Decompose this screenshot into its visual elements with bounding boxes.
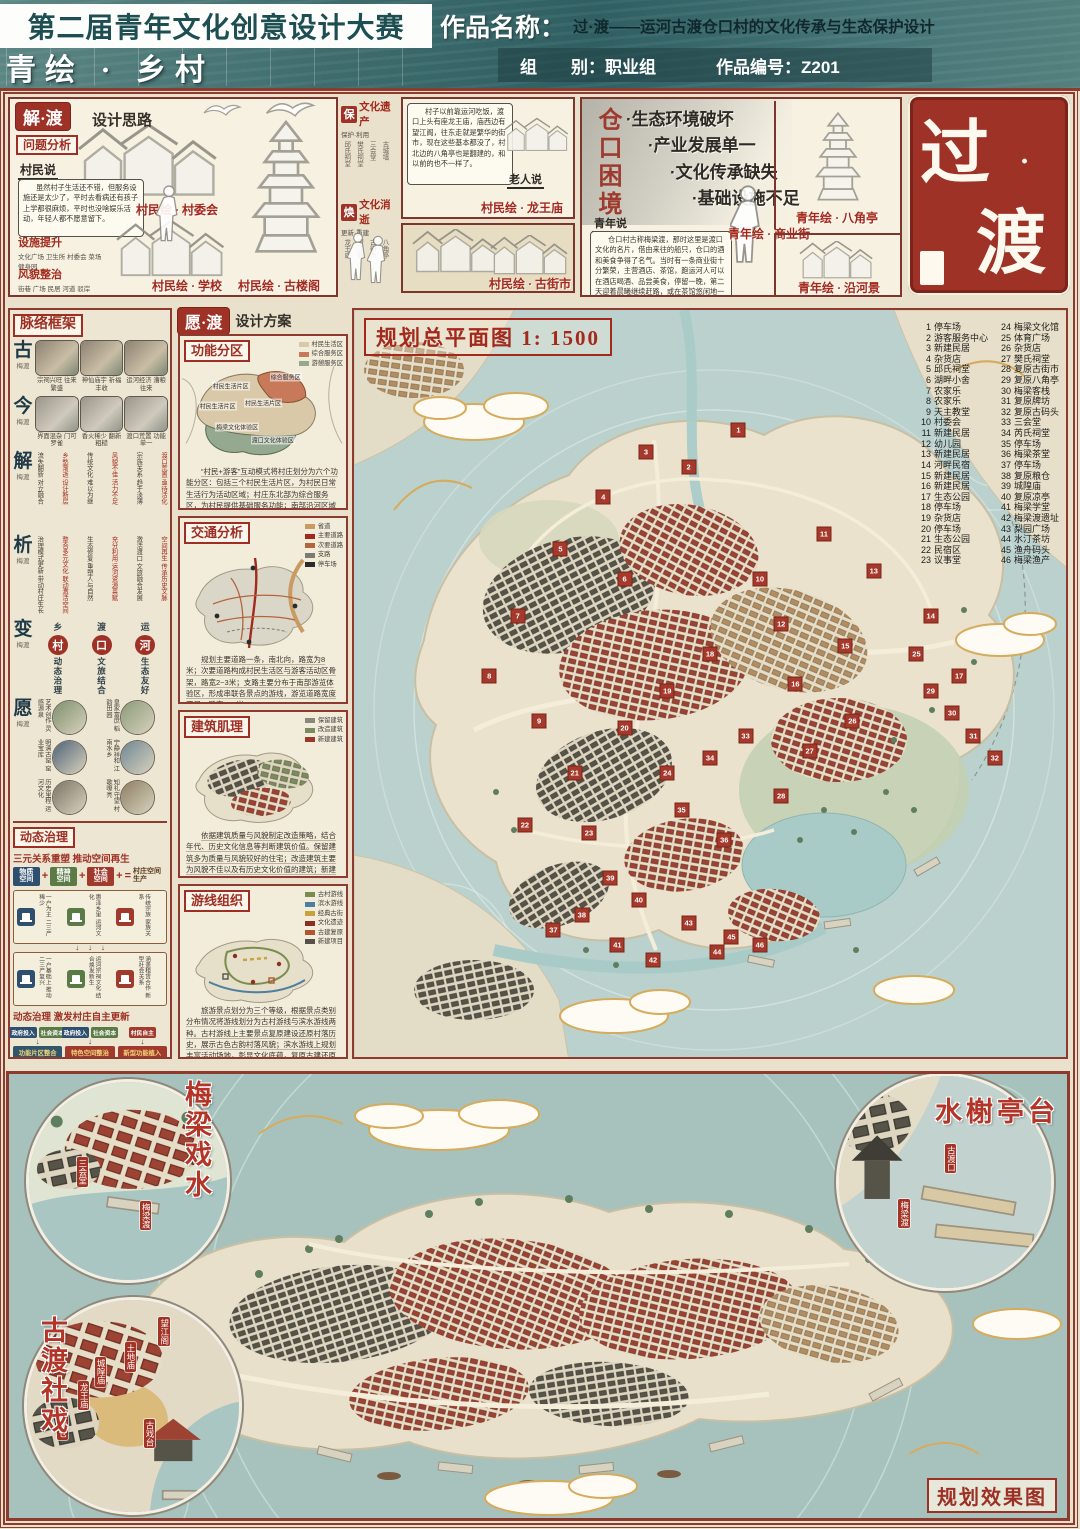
marker-number: 43	[684, 918, 692, 927]
map-marker: 10	[752, 571, 767, 586]
photo-card: 宗祠兴旺 往来繁盛	[36, 341, 78, 393]
marker-number: 30	[948, 709, 956, 718]
map-marker: 4	[596, 489, 611, 504]
analysis-note: 渡口荒置 亟待活化	[160, 452, 167, 532]
legend-row: 12幼儿园	[918, 439, 988, 450]
elder-quote: 村子以前靠运河吃饭，渡口上头有座龙王庙，庙西边有望江阁，往东走就是繁华的街市，现…	[407, 103, 513, 185]
legend-name: 生态公园	[934, 492, 970, 503]
vanish-title: 文化消逝	[359, 197, 399, 227]
row-analysis-2: 析梅渡 治理模式更新 带动村庄生长整合多元文化 联动激活空间生态修复 重塑人与自…	[13, 536, 167, 616]
analysis-note: 空间再生 传承历史文脉	[160, 536, 167, 616]
legend-number: 41	[998, 502, 1011, 513]
legend-row: 25体育广场	[998, 333, 1064, 344]
legend-name: 杂货店	[934, 513, 961, 524]
legend-name: 体育广场	[1014, 333, 1050, 344]
legend-number: 2	[918, 333, 931, 344]
legend-entry: 改造建筑	[305, 725, 343, 734]
yuan-du-seal: 愿·渡	[178, 308, 229, 334]
legend-number: 34	[998, 428, 1011, 439]
legend-name: 停车场	[934, 524, 961, 535]
row-analysis-1: 解梅渡 流失翻新 对立融合乡愁渐逝 设计断层传统文化 难以为继风貌不佳 活力不足…	[13, 452, 167, 532]
legend-entry: 综合服务区	[299, 349, 343, 358]
marker-number: 6	[622, 574, 626, 583]
map-marker: 13	[866, 564, 881, 579]
legend-row: 40复原凉亭	[998, 492, 1064, 503]
legend-number: 30	[998, 386, 1011, 397]
relation-card: 运河宗祠文化 结合焕发新生	[67, 956, 114, 1002]
transform-circle: 村	[48, 635, 68, 655]
villager-figure	[156, 183, 182, 245]
map-marker: 35	[674, 803, 689, 818]
transform-slogan: 生态友好	[139, 657, 151, 695]
legend-number: 37	[998, 460, 1011, 471]
legend-label: 次要道路	[318, 541, 343, 550]
map-marker: 27	[802, 743, 817, 758]
elder-figure	[347, 225, 369, 289]
legend-number: 23	[918, 555, 931, 566]
legend-label: 古村游线	[318, 890, 343, 899]
fabric-desc: 依据建筑质量与风貌制定改造策略，结合年代、历史文化信息等判断建筑价值。保留建筑多…	[186, 830, 340, 872]
legend-number: 39	[998, 481, 1011, 492]
style-renovation-title: 风貌整治	[18, 269, 62, 281]
routes-box: 游线组织 古村游线滨水游线经典古街文化遗迹古建复原新建项目 旅游景点划分为三个等…	[178, 884, 348, 1059]
relation-caption: 运河宗祠文化 结合焕发新生	[87, 956, 100, 1002]
main-title-seal: 过 · 渡 梅梁	[908, 95, 1070, 295]
legend-row: 21生态公园	[918, 534, 988, 545]
legend-row: 14河畔民宿	[918, 460, 988, 471]
legend-label: 停车场	[318, 560, 337, 569]
map-marker: 26	[845, 713, 860, 728]
analysis-note: 充分利用 运河资源禀赋	[110, 536, 117, 616]
caption-dragon-temple: 村民绘 · 龙王庙	[481, 199, 563, 216]
legend-swatch	[305, 737, 315, 742]
heritage-item: 古城墙	[379, 141, 389, 193]
photo-caption: 运河经济 漕粮往来	[125, 377, 167, 393]
photo-thumb	[125, 397, 167, 431]
legend-swatch	[305, 892, 315, 897]
legend-row: 19杂货店	[918, 513, 988, 524]
analysis-note: 激活渡口 文旅融合发展	[135, 536, 142, 616]
inset-tag: 望江阁	[158, 1317, 169, 1347]
legend-number: 44	[998, 534, 1011, 545]
dynamic-governance: 动态治理 三元关系重塑 推动空间再生 物质空间+ 精神空间+ 社会空间+ = 村…	[13, 821, 167, 1059]
map-marker: 28	[774, 788, 789, 803]
zoning-legend: 村民生活区综合服务区游憩服务区	[299, 340, 343, 368]
vision-cell: 皇家富庶 稻韵田园	[105, 699, 168, 735]
inset-tag: 古戏台	[144, 1419, 155, 1449]
legend-label: 古建复原	[318, 928, 343, 937]
vision-caption: 艺术创作 灵感源泉	[36, 699, 51, 735]
inset-tag: 城隍庙	[95, 1357, 106, 1387]
legend-label: 支路	[318, 550, 331, 559]
legend-name: 复原凉亭	[1014, 492, 1050, 503]
photo-caption: 神仙庙宇 祈福丰收	[81, 377, 123, 393]
relation-icon	[116, 908, 134, 926]
photo-thumb	[81, 397, 123, 431]
inset-label-meiliang: 梅梁戏水	[177, 1080, 216, 1200]
map-marker: 23	[581, 825, 596, 840]
zoning-tag: 功能分区	[184, 340, 250, 362]
legend-name: 梅梁茶堂	[1014, 449, 1050, 460]
marker-number: 46	[756, 940, 764, 949]
seal-dot: ·	[1020, 147, 1029, 177]
vision-photo	[53, 701, 86, 734]
marker-number: 21	[571, 769, 579, 778]
photo-caption: 宗祠兴旺 往来繁盛	[36, 377, 78, 393]
marker-number: 15	[841, 642, 849, 651]
legend-label: 村民生活区	[312, 340, 343, 349]
legend-number: 5	[918, 364, 931, 375]
photo-thumb	[125, 341, 167, 375]
group-label: 组 别：	[520, 58, 605, 77]
legend-row: 30梅梁客栈	[998, 386, 1064, 397]
legend-name: 梅梁渡遗址	[1014, 513, 1059, 524]
legend-label: 滨水游线	[318, 899, 343, 908]
master-plan-map: 规划总平面图 1: 1500 1停车场2游客服务中心3新建民居4杂货店5邱氏祠堂…	[352, 308, 1068, 1059]
era-gu: 古	[13, 341, 33, 360]
photo-card: 渡口荒置 功能单一	[125, 397, 167, 449]
jie-du-subtitle: 设计思路	[92, 109, 152, 130]
legend-number: 21	[918, 534, 931, 545]
legend-name: 梅梁渔产	[1014, 555, 1050, 566]
legend-swatch	[305, 562, 315, 567]
vision-cell: 宁静祥和 江南水乡	[105, 739, 168, 775]
legend-entry: 经典古街	[305, 909, 343, 918]
relation-caption: 涵盖租赁合作 新型社会关系	[136, 956, 149, 1002]
inset-tag: 梅梁渡	[140, 1201, 151, 1231]
legend-name: 复原八角亭	[1014, 375, 1059, 386]
map-marker: 30	[945, 706, 960, 721]
legend-number: 7	[918, 386, 931, 397]
inset-label-opera: 古渡社戏	[33, 1316, 72, 1436]
marker-number: 42	[649, 955, 657, 964]
problem-analysis-tag: 问题分析	[16, 135, 78, 155]
transform-slogan: 文旅结合	[96, 657, 108, 695]
legend-name: 河畔民宿	[934, 460, 970, 471]
zone-label: 村民生活片区	[212, 382, 250, 391]
analysis-note: 宗族关系 趋于淡薄	[135, 452, 142, 532]
fabric-tag: 建筑肌理	[184, 716, 250, 738]
legend-row: 31复原牌坊	[998, 396, 1064, 407]
formula-result: 村庄空间生产	[133, 868, 167, 885]
legend-entry: 省道	[305, 522, 343, 531]
inset-tag: 梅梁渡	[898, 1199, 909, 1229]
legend-row: 23议事堂	[918, 555, 988, 566]
legend-row: 20停车场	[918, 524, 988, 535]
inset-tag: 三会堂	[77, 1157, 88, 1187]
marker-number: 44	[713, 948, 721, 957]
heritage-item: 邱氏祠堂	[341, 141, 351, 193]
photo-caption: 香火稀少 翻新粗糙	[81, 433, 123, 449]
marker-number: 20	[620, 724, 628, 733]
legend-swatch	[299, 361, 309, 366]
vision-photo	[53, 741, 86, 774]
legend-row: 44水汀茶坊	[998, 534, 1064, 545]
legend-name: 三会堂	[1014, 417, 1041, 428]
entry-number-label: 作品编号：	[716, 58, 801, 77]
inset-label-pavilion: 水榭亭台	[935, 1090, 1059, 1129]
vision-caption: 皇家富庶 稻韵田园	[105, 699, 120, 735]
villager-say-label: 村民说	[18, 161, 58, 180]
legend-name: 复原牌坊	[1014, 396, 1050, 407]
marker-number: 18	[706, 649, 714, 658]
zone-label: 村民生活片区	[199, 401, 237, 410]
legend-name: 生态公园	[934, 534, 970, 545]
space-chip: 社会空间	[87, 867, 114, 886]
transform-slogan: 动态治理	[52, 657, 64, 695]
vision-caption: 明清古窑 窑业宝库	[36, 739, 51, 775]
legend-number: 35	[998, 439, 1011, 450]
sidebar-title: 脉络框架	[13, 314, 83, 337]
legend-name: 复原古码头	[1014, 407, 1059, 418]
yuan-du-subtitle: 设计方案	[235, 311, 291, 331]
map-marker: 14	[923, 609, 938, 624]
legend-label: 保留建筑	[318, 716, 343, 725]
era-xi: 析	[13, 536, 33, 555]
zone-label: 渡口文化体验区	[251, 436, 295, 445]
marker-number: 33	[741, 731, 749, 740]
relation-caption: 一户基础上 推动二三产复兴	[37, 956, 50, 1002]
zone-label: 综合服务区	[270, 373, 302, 382]
legend-swatch	[305, 543, 315, 548]
legend-number: 33	[998, 417, 1011, 428]
map-marker: 19	[660, 683, 675, 698]
plus-sign: +	[42, 870, 48, 882]
mid-section: 脉络框架 古梅渡 宗祠兴旺 往来繁盛神仙庙宇 祈福丰收运河经济 漕粮往来 今梅渡…	[0, 302, 1080, 1065]
traffic-desc: 规划主要道路一条，南北向，路宽为8米；次要道路构成村民生活区与游客活动区骨架，路…	[186, 654, 340, 698]
legend-row: 28复原古街市	[998, 364, 1064, 375]
legend-name: 新建民居	[934, 481, 970, 492]
map-marker: 46	[752, 937, 767, 952]
era-bian-sub: 梅渡	[13, 639, 33, 649]
legend-name: 停车场	[934, 502, 961, 513]
analysis-note: 整合多元文化 联动激活空间	[61, 536, 68, 616]
marker-number: 27	[806, 746, 814, 755]
analysis-note: 治理模式更新 带动村庄生长	[36, 536, 43, 616]
legend-row: 10村委会	[918, 417, 988, 428]
plus-sign: +	[79, 870, 85, 882]
legend-swatch	[305, 534, 315, 539]
legend-name: 梅梁文化馆	[1014, 322, 1059, 333]
legend-row: 13新建民居	[918, 449, 988, 460]
zone-labels: 村民生活片区综合服务区村民生活片区村民生活片区梅梁文化体验区渡口文化体验区	[182, 358, 344, 466]
legend-entry: 次要道路	[305, 541, 343, 550]
map-marker: 45	[724, 930, 739, 945]
legend-label: 新建建筑	[318, 735, 343, 744]
legend-row: 43梨园广场	[998, 524, 1064, 535]
legend-number: 16	[918, 481, 931, 492]
transform-prefix: 运	[141, 620, 150, 633]
legend-number: 12	[918, 439, 931, 450]
vision-caption: 历史里程 运河文化	[36, 779, 51, 815]
legend-row: 36梅梁茶堂	[998, 449, 1064, 460]
legend-number: 38	[998, 471, 1011, 482]
heritage-items: 邱氏祠堂樊氏祠堂三会堂古城墙	[341, 141, 399, 193]
era-jie: 解	[13, 452, 33, 471]
legend-name: 停车场	[1014, 439, 1041, 450]
legend-entry: 文化遗迹	[305, 918, 343, 927]
marker-number: 34	[706, 754, 714, 763]
legend-name: 邱氏祠堂	[934, 364, 970, 375]
legend-name: 渔舟码头	[1014, 545, 1050, 556]
caption-pavilion: 青年绘 · 八角亭	[796, 209, 878, 226]
legend-entry: 古村游线	[305, 890, 343, 899]
transform-circle: 口	[92, 635, 112, 655]
photo-card: 香火稀少 翻新粗糙	[81, 397, 123, 449]
analysis-note: 流失翻新 对立融合	[36, 452, 43, 532]
vision-photo	[121, 741, 154, 774]
legend-number: 8	[918, 396, 931, 407]
marker-number: 39	[606, 873, 614, 882]
legend-number: 26	[998, 343, 1011, 354]
transform-prefix: 乡	[53, 620, 62, 633]
legend-row: 32复原古码头	[998, 407, 1064, 418]
legend-row: 27樊氏祠堂	[998, 354, 1064, 365]
map-marker: 25	[909, 646, 924, 661]
vision-cell: 明清古窑 窑业宝库	[36, 739, 99, 775]
era-jin-sub: 梅渡	[13, 416, 33, 426]
traffic-box: 交通分析 省道主要道路次要道路支路停车场 规划主要道路一条，南北向，路宽为8米；…	[178, 516, 348, 704]
legend-name: 游客服务中心	[934, 333, 988, 344]
map-marker: 15	[838, 639, 853, 654]
legend-name: 天主教堂	[934, 407, 970, 418]
legend-name: 芮氏祠堂	[1014, 428, 1050, 439]
legend-row: 42梅梁渡遗址	[998, 513, 1064, 524]
map-marker: 1	[731, 422, 746, 437]
legend-row: 18停车场	[918, 502, 988, 513]
legend-name: 新建民居	[934, 343, 970, 354]
dynamic-h2: 动态治理 激发村庄自主更新	[13, 1009, 167, 1023]
legend-number: 24	[998, 322, 1011, 333]
fabric-box: 建筑肌理 保留建筑改造建筑新建建筑 依据建筑质量与风貌制定改造策略，结合年代、历…	[178, 710, 348, 878]
map-marker: 40	[631, 893, 646, 908]
vision-cell: 历史里程 运河文化	[36, 779, 99, 815]
legend-swatch	[305, 553, 315, 558]
legend-swatch	[305, 524, 315, 529]
marker-number: 2	[687, 462, 691, 471]
legend-name: 杂货店	[1014, 343, 1041, 354]
routes-legend: 古村游线滨水游线经典古街文化遗迹古建复原新建项目	[305, 890, 343, 947]
map-marker: 3	[638, 444, 653, 459]
caption-school: 村民绘 · 学校	[152, 277, 222, 294]
photo-card: 界面混杂 门可罗雀	[36, 397, 78, 449]
map-marker: 5	[553, 542, 568, 557]
tower-sketch	[246, 107, 326, 265]
render-caption: 规划效果图	[927, 1478, 1057, 1513]
legend-number: 29	[998, 375, 1011, 386]
map-marker: 33	[738, 728, 753, 743]
legend-name: 杂货店	[934, 354, 961, 365]
legend-number: 18	[918, 502, 931, 513]
legend-row: 8农家乐	[918, 396, 988, 407]
traffic-tag: 交通分析	[184, 522, 250, 544]
marker-number: 22	[521, 821, 529, 830]
legend-swatch	[305, 921, 315, 926]
legend-row: 1停车场	[918, 322, 988, 333]
work-name-label: 作品名称：	[440, 8, 565, 44]
map-marker: 38	[574, 908, 589, 923]
map-title: 规划总平面图 1: 1500	[364, 318, 612, 356]
legend-number: 3	[918, 343, 931, 354]
legend-label: 新建项目	[318, 937, 343, 946]
zone-label: 村民生活片区	[244, 399, 282, 408]
legend-swatch	[305, 728, 315, 733]
legend-name: 新建民居	[934, 449, 970, 460]
relation-card: 一户基础上 推动二三产复兴	[17, 956, 64, 1002]
bird-icon	[200, 99, 244, 119]
marker-number: 32	[991, 754, 999, 763]
legend-number: 43	[998, 524, 1011, 535]
jie-du-seal: 解·渡	[16, 103, 70, 130]
vision-cell: 艺术创作 灵感源泉	[36, 699, 99, 735]
map-legend: 1停车场2游客服务中心3新建民居4杂货店5邱氏祠堂6湖畔小舍7农家乐8农家乐9天…	[918, 322, 1064, 566]
marker-number: 4	[601, 492, 605, 501]
dynamic-h1: 三元关系重塑 推动空间再生	[13, 851, 167, 865]
plan-column: 愿·渡 设计方案 功能分区 村民生活区综合服务区游憩服务区 村民生活片区综合服务…	[178, 308, 348, 1059]
seal-char-du: 渡	[976, 187, 1046, 288]
transform-circle: 河	[135, 635, 155, 655]
marker-number: 31	[969, 731, 977, 740]
era-gu-sub: 梅渡	[13, 360, 33, 370]
zoning-box: 功能分区 村民生活区综合服务区游憩服务区 村民生活片区综合服务区村民生活片区村民…	[178, 334, 348, 510]
era-yuan: 愿	[13, 699, 33, 718]
row-transform: 变梅渡 乡 村 动态治理 渡 口 文旅结合 运 河 生态	[13, 620, 167, 695]
map-marker: 21	[567, 766, 582, 781]
marker-number: 25	[912, 649, 920, 658]
photo-caption: 渡口荒置 功能单一	[125, 433, 167, 449]
legend-entry: 保留建筑	[305, 716, 343, 725]
marker-number: 3	[644, 447, 648, 456]
analysis-note: 传统文化 难以为继	[86, 452, 93, 532]
legend-row: 26杂货店	[998, 343, 1064, 354]
bird-icon	[262, 97, 318, 121]
legend-name: 新建民居	[934, 471, 970, 482]
legend-entry: 新建建筑	[305, 735, 343, 744]
relation-icon	[17, 908, 35, 926]
marker-number: 9	[537, 716, 541, 725]
relation-icon	[67, 908, 85, 926]
caption-tower: 村民绘 · 古楼阁	[238, 277, 320, 294]
legend-entry: 滨水游线	[305, 899, 343, 908]
map-marker: 18	[703, 646, 718, 661]
legend-name: 议事堂	[934, 555, 961, 566]
entry-meta: 组 别：职业组 作品编号：Z201	[498, 48, 932, 82]
transform-item: 渡 口 文旅结合	[80, 620, 124, 695]
legend-row: 3新建民居	[918, 343, 988, 354]
strategy-column: 政府投入社会资本 ↓ 特色空间整治 建筑立面改造历史街巷形式改造水系改造景观节点…	[65, 1027, 114, 1059]
photo-thumb	[81, 341, 123, 375]
fabric-legend: 保留建筑改造建筑新建建筑	[305, 716, 343, 744]
vision-cell: 知礼守望 村歌嘹亮	[105, 779, 168, 815]
legend-name: 梅梁客栈	[1014, 386, 1050, 397]
strategy-column: 村民自主 ↓ 新型功能植入 民宿农家乐	[118, 1027, 167, 1059]
relation-card: 一户为主 二三产稀少	[17, 894, 64, 940]
analysis-note: 乡愁渐逝 设计断层	[61, 452, 68, 532]
legend-row: 17生态公园	[918, 492, 988, 503]
marker-number: 45	[727, 933, 735, 942]
vision-photo	[121, 701, 154, 734]
marker-number: 17	[955, 672, 963, 681]
map-marker: 41	[610, 937, 625, 952]
header: 第二届青年文化创意设计大赛 青绘 · 乡村 作品名称： 过·渡——运河古渡仓口村…	[0, 0, 1080, 88]
heritage-sub: 保护·利用	[341, 129, 399, 139]
legend-swatch	[305, 930, 315, 935]
vision-photo	[121, 781, 154, 814]
marker-number: 41	[613, 940, 621, 949]
legend-number: 40	[998, 492, 1011, 503]
photo-thumb	[36, 341, 78, 375]
era-xi-sub: 梅渡	[13, 555, 33, 565]
